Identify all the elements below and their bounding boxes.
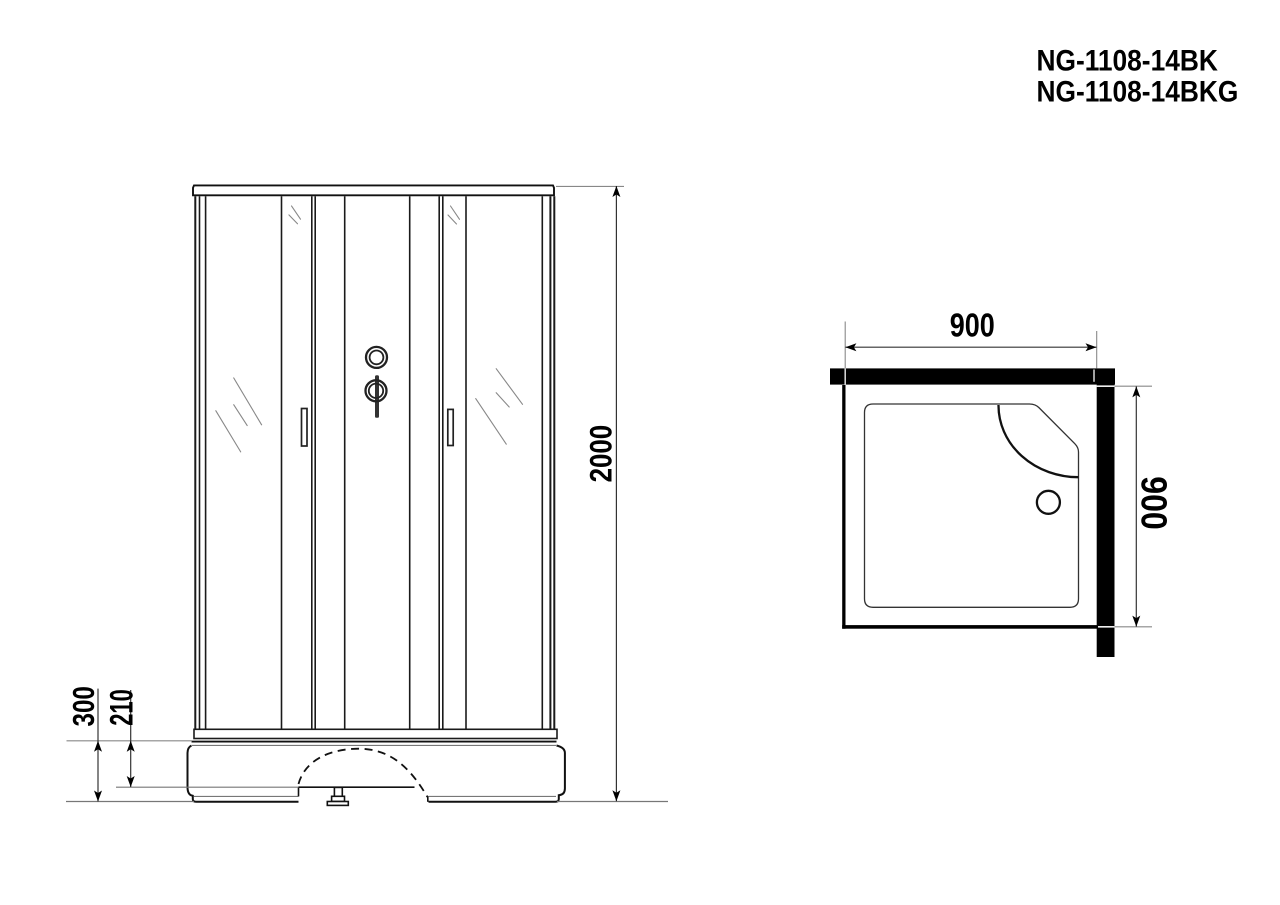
svg-text:900: 900 bbox=[1133, 476, 1173, 530]
svg-text:2000: 2000 bbox=[584, 425, 619, 483]
svg-text:210: 210 bbox=[103, 689, 139, 726]
svg-text:900: 900 bbox=[950, 308, 995, 344]
svg-text:300: 300 bbox=[66, 686, 100, 726]
svg-text:NG-1108-14BKG: NG-1108-14BKG bbox=[1037, 75, 1239, 108]
svg-text:NG-1108-14BK: NG-1108-14BK bbox=[1037, 44, 1219, 77]
